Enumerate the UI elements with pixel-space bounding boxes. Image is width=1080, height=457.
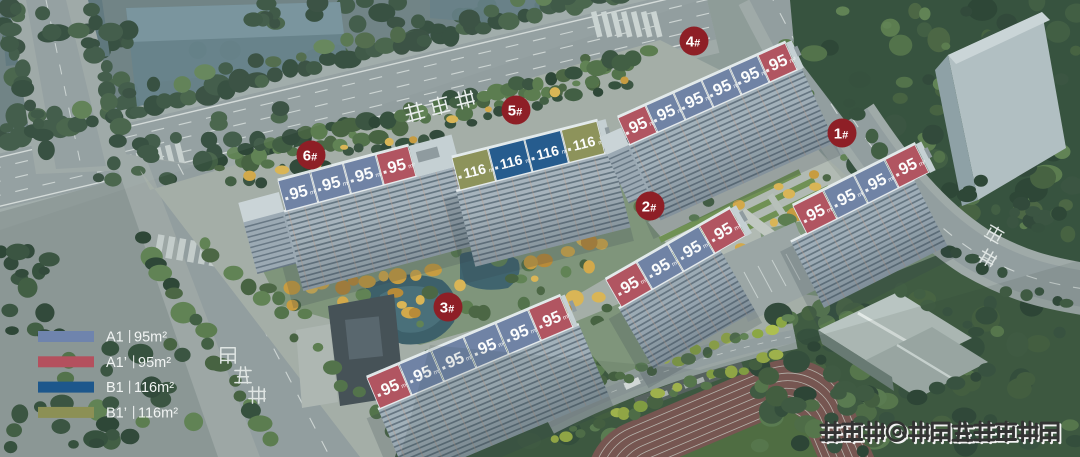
svg-text:95m²: 95m² <box>138 355 171 371</box>
svg-text:95m²: 95m² <box>134 330 167 346</box>
svg-text:A1’: A1’ <box>106 355 127 371</box>
svg-text:B1’: B1’ <box>106 405 127 421</box>
svg-text:116m²: 116m² <box>134 380 174 396</box>
svg-text:A1: A1 <box>106 330 124 346</box>
svg-text:B1: B1 <box>106 380 124 396</box>
svg-text:116m²: 116m² <box>138 405 178 421</box>
